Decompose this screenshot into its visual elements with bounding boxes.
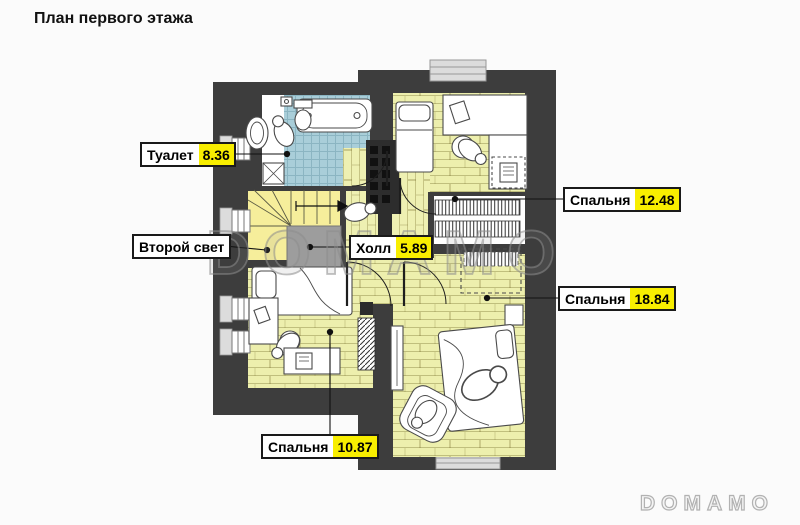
room-name: Второй свет [134,236,229,257]
wardrobe [358,318,375,370]
room-area: 18.84 [630,288,673,309]
desk [284,348,340,374]
wall-sink [281,97,292,106]
top-window [430,60,486,81]
room-label-bedroom-top: Спальня 12.48 [563,187,681,212]
bed [396,102,433,172]
domamo-logo: DOMAMO [640,492,774,516]
nightstand [505,305,523,325]
room-name: Холл [351,237,396,258]
sink [246,117,268,149]
cabinet [360,302,373,315]
toilet [294,100,312,130]
window [220,296,250,322]
room-area: 12.48 [635,189,678,210]
room-label-bedroom-bottom: Спальня 10.87 [261,434,379,459]
window [220,329,250,355]
wardrobe-rail [435,221,520,237]
wardrobe-rail [435,200,520,215]
window [220,208,250,234]
room-name: Спальня [565,189,635,210]
room-label-bedroom-right: Спальня 18.84 [558,286,676,311]
room-name: Спальня [263,436,333,457]
room-label-hall: Холл 5.89 [349,235,433,260]
room-label-toilet: Туалет 8.36 [140,142,236,167]
room-area: 10.87 [333,436,376,457]
room-area: 8.36 [199,144,234,165]
floor-plan-page: План первого этажа [0,0,800,525]
room-name: Спальня [560,288,630,309]
room-name: Туалет [142,144,199,165]
desk [249,298,278,344]
room-area: 5.89 [396,237,431,258]
shower-tray [263,163,284,184]
room-label-second-light: Второй свет [132,234,231,259]
floor-plan-drawing [0,0,800,525]
